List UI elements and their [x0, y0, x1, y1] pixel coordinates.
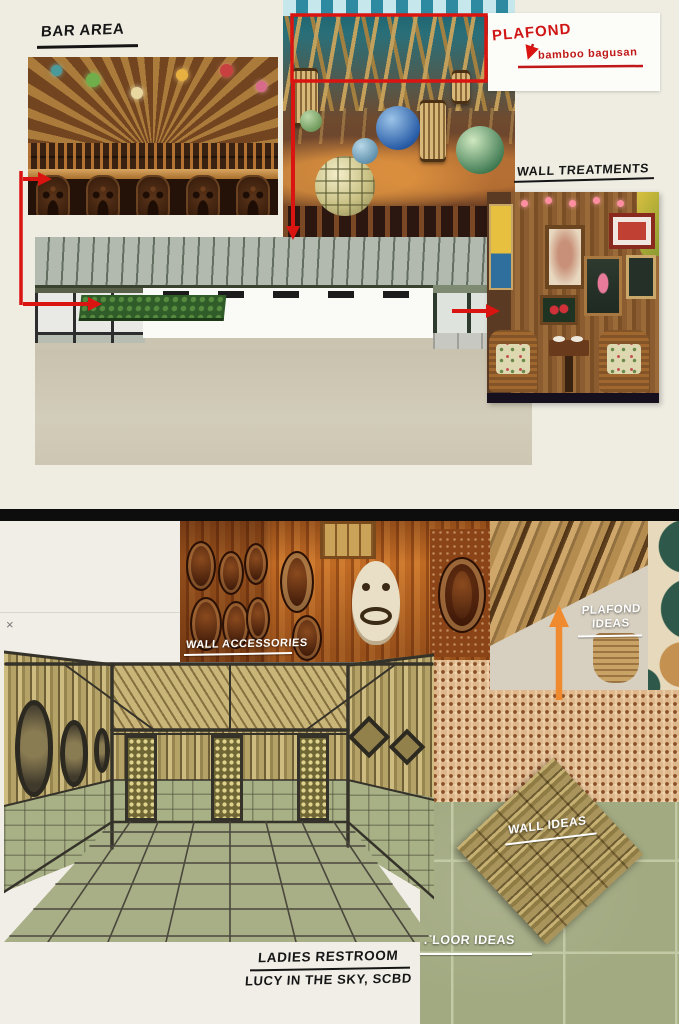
bar-area-underline [37, 44, 138, 48]
close-icon[interactable]: × [6, 618, 14, 631]
hanging-lamp [256, 81, 267, 92]
pinup-frame [545, 225, 585, 289]
cafe-table [549, 340, 589, 356]
travel-poster [489, 204, 513, 290]
string-light [593, 197, 600, 204]
tribal-mask [218, 551, 244, 595]
plafond-ideas-label: PLAFOND IDEAS [572, 603, 651, 633]
glass-float-green [456, 126, 504, 174]
hanging-lamp [220, 64, 233, 77]
awning-stripes [283, 0, 515, 16]
wall-treatments-photo [487, 192, 659, 403]
floor-ideas-underline [420, 953, 532, 955]
bar-area-label: BAR AREA [41, 21, 125, 41]
mood-board: PLAFOND bamboo bagusan BAR AREA [0, 0, 679, 1024]
restroom-subtitle: LUCY IN THE SKY, SCBD [244, 971, 412, 989]
tribal-mask [186, 541, 216, 591]
panel-divider [0, 509, 679, 521]
sketch-lattice-door [297, 735, 329, 821]
backbar-shelves [28, 143, 278, 171]
photo-frame [626, 255, 656, 299]
tiki-carving [86, 175, 120, 215]
leaf-mural-strip [648, 521, 679, 690]
hanging-lamp [176, 69, 188, 81]
bamboo-lantern-icon [420, 100, 446, 162]
hanging-lamp [51, 65, 62, 76]
restroom-title: LADIES RESTROOM [257, 948, 398, 965]
table-leg [565, 356, 573, 392]
tiki-carving [136, 175, 170, 215]
white-tiki-mask [352, 561, 400, 645]
rattan-chair [489, 330, 537, 392]
render-floor [35, 349, 532, 465]
tiki-carving [186, 175, 220, 215]
tribal-mask [244, 543, 268, 585]
render-clerestory-slit [273, 291, 299, 298]
hanging-lamp [86, 73, 100, 87]
glass-float-netted [315, 156, 375, 216]
bar-canopy [28, 57, 278, 145]
glass-float-small [300, 110, 322, 132]
render-hedge-bench [79, 295, 227, 321]
bar-area-photo [28, 57, 278, 215]
sketch-oval-frame [15, 700, 53, 797]
basket-pendant-lamp [593, 633, 639, 683]
top-panel: PLAFOND bamboo bagusan BAR AREA [0, 0, 679, 509]
dark-floor [487, 393, 659, 403]
string-light [617, 200, 624, 207]
plate [571, 336, 583, 342]
red-art-frame [609, 213, 655, 249]
plate [553, 336, 565, 342]
glass-float-small [352, 138, 378, 164]
sketch-lattice-door [211, 735, 243, 821]
panel-edge-line [0, 612, 185, 613]
tribal-mask [246, 597, 270, 641]
string-light [569, 200, 576, 207]
flamingo-frame [584, 256, 622, 316]
sketch-oval-frame [94, 728, 110, 773]
sketch-lattice-door [125, 735, 157, 821]
sketch-oval-frame [60, 720, 88, 787]
hibiscus-frame [540, 295, 578, 325]
string-light [545, 197, 552, 204]
oval-shield [438, 557, 486, 633]
render-clerestory-slit [328, 291, 354, 298]
tiki-carving [36, 175, 70, 215]
string-light [521, 200, 528, 207]
bamboo-lantern-icon [452, 70, 470, 104]
ceiling-lanterns-photo [283, 0, 515, 247]
rattan-chair [599, 330, 649, 392]
box-lantern [320, 521, 376, 559]
floor-ideas-label: FLOOR IDEAS [424, 933, 516, 947]
render-clerestory-slit [383, 291, 409, 298]
hanging-lamp [131, 87, 143, 99]
wall-treatments-label: WALL TREATMENTS [517, 161, 650, 178]
render-ceiling [35, 237, 532, 288]
bottom-panel: × WALL ACCESSORIES [0, 521, 679, 1024]
restroom-sketch [4, 646, 434, 942]
glass-float-blue [376, 106, 420, 150]
room-render [35, 237, 532, 465]
tiki-carving [236, 175, 270, 215]
tribal-mask [280, 551, 314, 613]
